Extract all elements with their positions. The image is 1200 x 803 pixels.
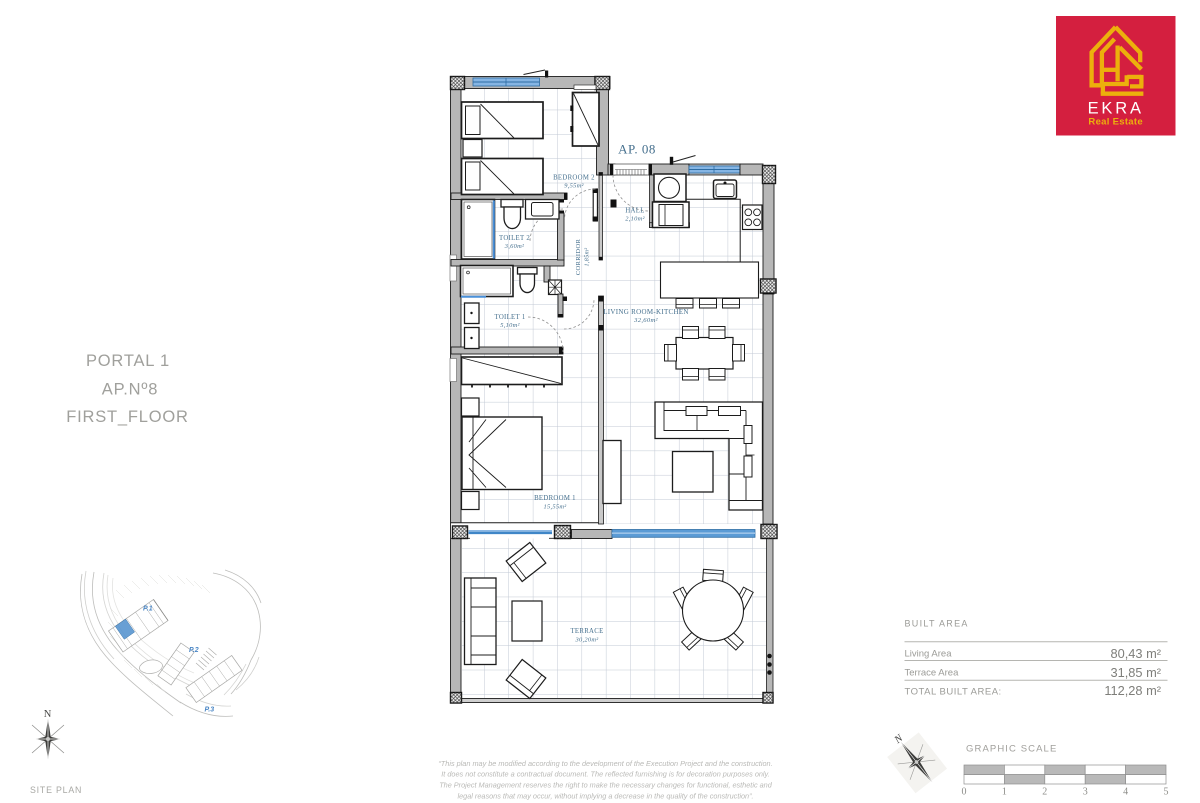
- svg-text:HALL: HALL: [625, 208, 644, 215]
- svg-text:15,55m²: 15,55m²: [543, 504, 566, 511]
- svg-text:2: 2: [1042, 787, 1047, 798]
- svg-text:CORRIDOR: CORRIDOR: [575, 238, 582, 275]
- svg-text:AP.Nº8: AP.Nº8: [102, 381, 158, 399]
- svg-text:TOILET 1: TOILET 1: [494, 314, 525, 321]
- svg-text:Real Estate: Real Estate: [1088, 117, 1143, 128]
- svg-text:PORTAL 1: PORTAL 1: [86, 352, 170, 370]
- svg-text:1: 1: [1002, 787, 1007, 798]
- svg-text:Terrace Area: Terrace Area: [905, 668, 960, 679]
- svg-text:P.2: P.2: [189, 647, 199, 654]
- svg-text:N: N: [44, 709, 52, 720]
- svg-text:BEDROOM 1: BEDROOM 1: [534, 495, 576, 502]
- svg-text:TOILET 2: TOILET 2: [499, 235, 530, 242]
- svg-text:5,10m²: 5,10m²: [500, 322, 520, 329]
- svg-text:TERRACE: TERRACE: [570, 628, 603, 635]
- svg-text:BEDROOM 2: BEDROOM 2: [553, 175, 595, 182]
- svg-text:30,20m²: 30,20m²: [574, 637, 598, 644]
- svg-text:P.1: P.1: [143, 606, 153, 613]
- svg-text:The Project Management reserve: The Project Management reserves the righ…: [439, 781, 773, 790]
- svg-text:3,60m²: 3,60m²: [504, 243, 525, 250]
- svg-text:TOTAL BUILT AREA:: TOTAL BUILT AREA:: [905, 687, 1002, 698]
- svg-text:0: 0: [962, 787, 967, 798]
- svg-text:FIRST_FLOOR: FIRST_FLOOR: [66, 408, 188, 426]
- svg-text:EKRA: EKRA: [1088, 100, 1144, 118]
- svg-text:4: 4: [1123, 787, 1128, 798]
- svg-text:5: 5: [1164, 787, 1169, 798]
- svg-text:It does not constitute a contr: It does not constitute a contractual doc…: [441, 770, 769, 779]
- svg-text:80,43 m²: 80,43 m²: [1110, 646, 1161, 661]
- svg-text:AP. 08: AP. 08: [618, 142, 656, 157]
- svg-text:LIVING ROOM-KITCHEN: LIVING ROOM-KITCHEN: [603, 308, 689, 316]
- svg-text:3: 3: [1083, 787, 1088, 798]
- svg-text:2,10m²: 2,10m²: [625, 216, 645, 223]
- svg-text:P.3: P.3: [205, 707, 215, 714]
- svg-text:legal reasons that may occur,: legal reasons that may occur, without im…: [457, 792, 753, 801]
- svg-text:BUILT AREA: BUILT AREA: [905, 619, 969, 629]
- svg-text:SITE PLAN: SITE PLAN: [30, 785, 82, 795]
- svg-text:32,60m²: 32,60m²: [633, 317, 658, 324]
- svg-text:112,28 m²: 112,28 m²: [1104, 683, 1161, 698]
- svg-text:31,85 m²: 31,85 m²: [1110, 665, 1161, 680]
- svg-text:1,85m²: 1,85m²: [584, 248, 591, 267]
- svg-text:GRAPHIC SCALE: GRAPHIC SCALE: [966, 744, 1057, 755]
- svg-text:9,55m²: 9,55m²: [564, 183, 584, 190]
- svg-text:Living Area: Living Area: [905, 649, 953, 660]
- svg-text:“This plan may be modified acc: “This plan may be modified according to …: [438, 759, 772, 768]
